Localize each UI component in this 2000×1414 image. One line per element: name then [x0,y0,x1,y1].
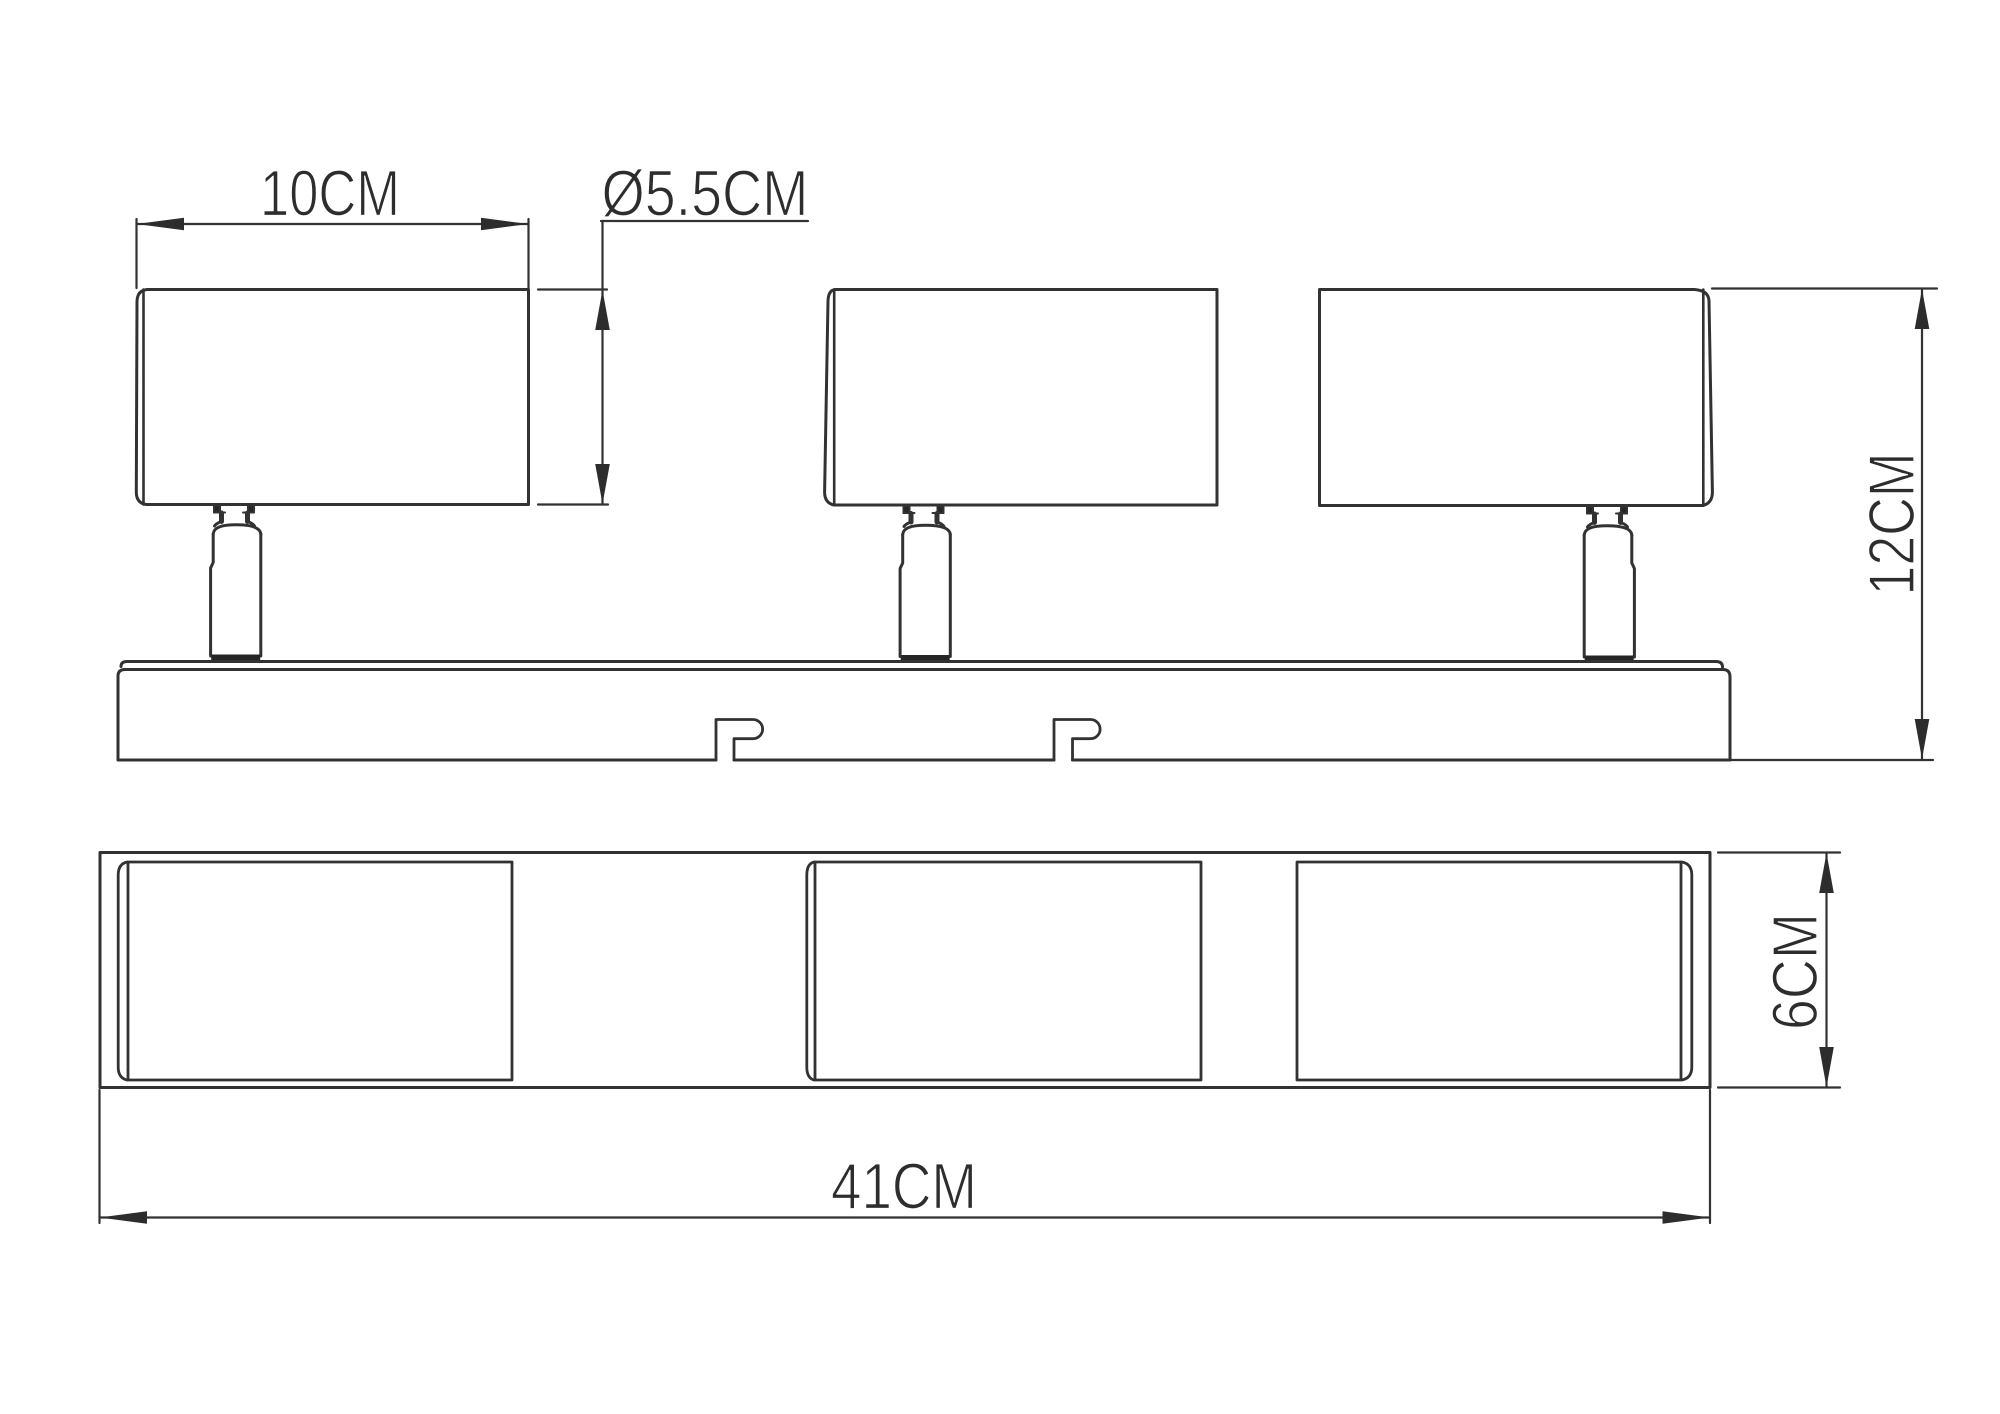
svg-text:Ø5.5CM: Ø5.5CM [602,157,809,230]
svg-text:6CM: 6CM [1759,913,1831,1030]
svg-text:12CM: 12CM [1855,453,1928,596]
svg-text:10CM: 10CM [260,157,400,230]
svg-text:41CM: 41CM [831,1150,977,1223]
